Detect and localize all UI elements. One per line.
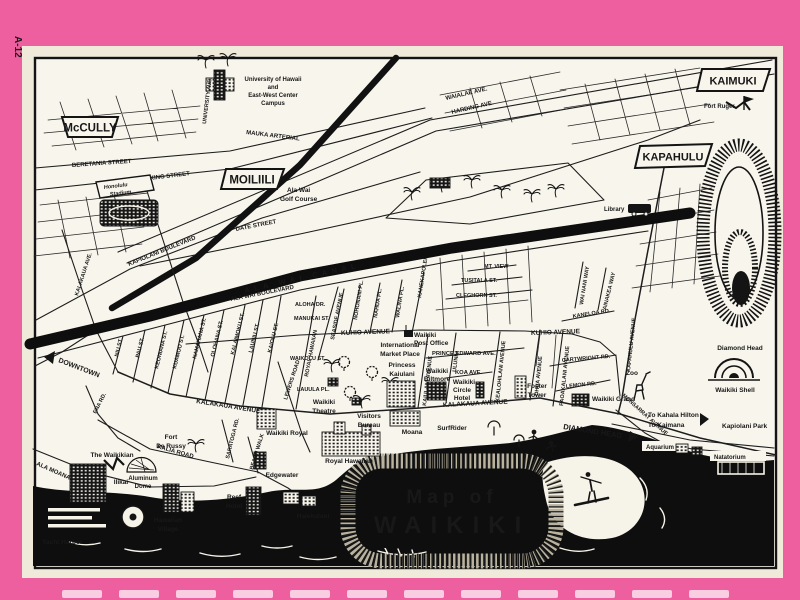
- street-label-lauula: LAUULA PL.: [297, 387, 330, 393]
- label-zoo: Zoo: [626, 370, 638, 377]
- label-surfrider: SurfRider: [437, 425, 467, 432]
- street-label-mt-view: MT. VIEW: [484, 264, 509, 270]
- label-edgewater: Edgewater: [266, 472, 299, 479]
- label-royal-hawaiian: Royal Hawaiian: [325, 458, 373, 465]
- label-halekulani: Halekulani: [297, 513, 330, 520]
- yacht-pier: [48, 508, 100, 512]
- street-label-manukai: MANUKAI ST.: [294, 316, 330, 322]
- map-title-cartouche: Map of WAIKIKI: [348, 461, 556, 561]
- building-waikiki-circle: [476, 382, 484, 398]
- label-aquarium: Aquarium: [646, 445, 674, 451]
- label-university-2: and: [268, 85, 279, 91]
- building-reef-hotel: [246, 487, 261, 515]
- street-label-cleghorn: CLEGHORN ST.: [456, 293, 497, 299]
- label-to-kahala: To Kahala Hilton: [648, 412, 699, 419]
- yacht-harbor-label: Yacht Harbor: [42, 539, 83, 546]
- label-princess-2: Kaiulani: [389, 371, 414, 378]
- label-university-3: East-West Center: [248, 93, 298, 99]
- map-title-line1: Map of: [406, 487, 497, 508]
- yacht-pier: [48, 516, 92, 520]
- label-waikiki-shell: Waikiki Shell: [715, 387, 755, 394]
- label-theatre-2: Theatre: [312, 408, 336, 415]
- building-moana: [390, 411, 420, 426]
- page-side-label: A-12: [12, 36, 23, 58]
- label-golf-2: Golf Course: [280, 196, 318, 203]
- label-ilikai: Ilikai: [114, 479, 129, 486]
- label-diamond-head: Diamond Head: [717, 345, 763, 352]
- banner-mccully-label: McCULLY: [63, 123, 117, 135]
- label-post-office-1: Waikiki: [414, 332, 436, 339]
- building-hawaiian-village: [163, 484, 179, 512]
- label-golf-1: Ala Wai: [287, 187, 310, 194]
- scanned-map-page: A-12: [0, 0, 800, 600]
- banner-kapahulu-label: KAPAHULU: [643, 152, 704, 164]
- label-circle-2: Circle: [453, 387, 471, 394]
- label-university-4: Campus: [261, 101, 285, 107]
- label-foster-1: Foster: [527, 383, 547, 390]
- label-waikiki-grand: Waikiki Grand: [592, 396, 635, 403]
- label-visitors-1: Visitors: [357, 413, 381, 420]
- golf-clubhouse: [430, 178, 450, 188]
- street-label-aloha-dr: ALOHA DR.: [295, 302, 326, 308]
- map-title-line2: WAIKIKI: [374, 512, 530, 539]
- building-princess-kaiulani: [387, 381, 415, 407]
- waikiki-map-scan: A-12: [0, 0, 800, 600]
- label-kapiolani-park: Kapiolani Park: [722, 423, 768, 430]
- label-princess-1: Princess: [388, 362, 415, 369]
- label-foster-2: Tower: [528, 392, 547, 399]
- building-halekulani: [283, 492, 299, 504]
- street-label-prince-edward: PRINCE EDWARD AVE.: [432, 351, 496, 357]
- label-fort-derussy-2: De Russy: [156, 443, 186, 450]
- label-fort-ruger: Fort Ruger: [704, 104, 735, 110]
- yacht-pier: [48, 524, 106, 528]
- label-intl-market-1: International: [380, 342, 419, 349]
- building-royal-hawaiian: [322, 432, 380, 456]
- building-waikiki-grand: [572, 394, 589, 406]
- street-label-tusitala: TUSITALA ST.: [461, 278, 498, 284]
- label-fort-derussy-1: Fort: [165, 434, 178, 441]
- label-university-1: University of Hawaii: [244, 77, 301, 83]
- building-ilikai: [70, 464, 106, 502]
- label-library: Library: [604, 207, 625, 213]
- label-aluminum-2: Dome: [135, 484, 152, 490]
- label-hawaiian-village-2: Village: [158, 526, 179, 533]
- label-waikiki-royal: Waikiki Royal: [266, 430, 308, 437]
- label-theatre-1: Waikiki: [313, 399, 335, 406]
- label-natatorium: Natatorium: [714, 455, 746, 461]
- banner-moiliili-label: MOILIILI: [229, 175, 274, 187]
- label-reef-2: Hotel: [226, 503, 242, 510]
- label-visitors-2: Bureau: [358, 422, 380, 429]
- label-biltmore-2: Biltmore: [424, 376, 451, 383]
- street-label-koa: KOA AVE.: [455, 370, 483, 376]
- banner-kaimuki-label: KAIMUKI: [709, 76, 756, 88]
- label-circle-1: Waikiki: [453, 379, 475, 386]
- label-biltmore-1: Waikiki: [426, 368, 448, 375]
- label-circle-3: Hotel: [454, 395, 470, 402]
- label-intl-market-2: Market Place: [380, 351, 420, 358]
- label-moana: Moana: [402, 429, 423, 436]
- building-foster-tower: [515, 376, 526, 398]
- label-hawaiian-village-1: Hawaiian: [154, 517, 182, 524]
- label-reef-1: Reef: [227, 494, 242, 501]
- label-to-kaimana: To Kaimana: [648, 422, 685, 429]
- label-aluminum-1: Aluminum: [128, 476, 157, 482]
- label-waikikian: The Waikikian: [90, 452, 133, 459]
- street-label-waikolu: WAIKOLU ST.: [290, 356, 326, 362]
